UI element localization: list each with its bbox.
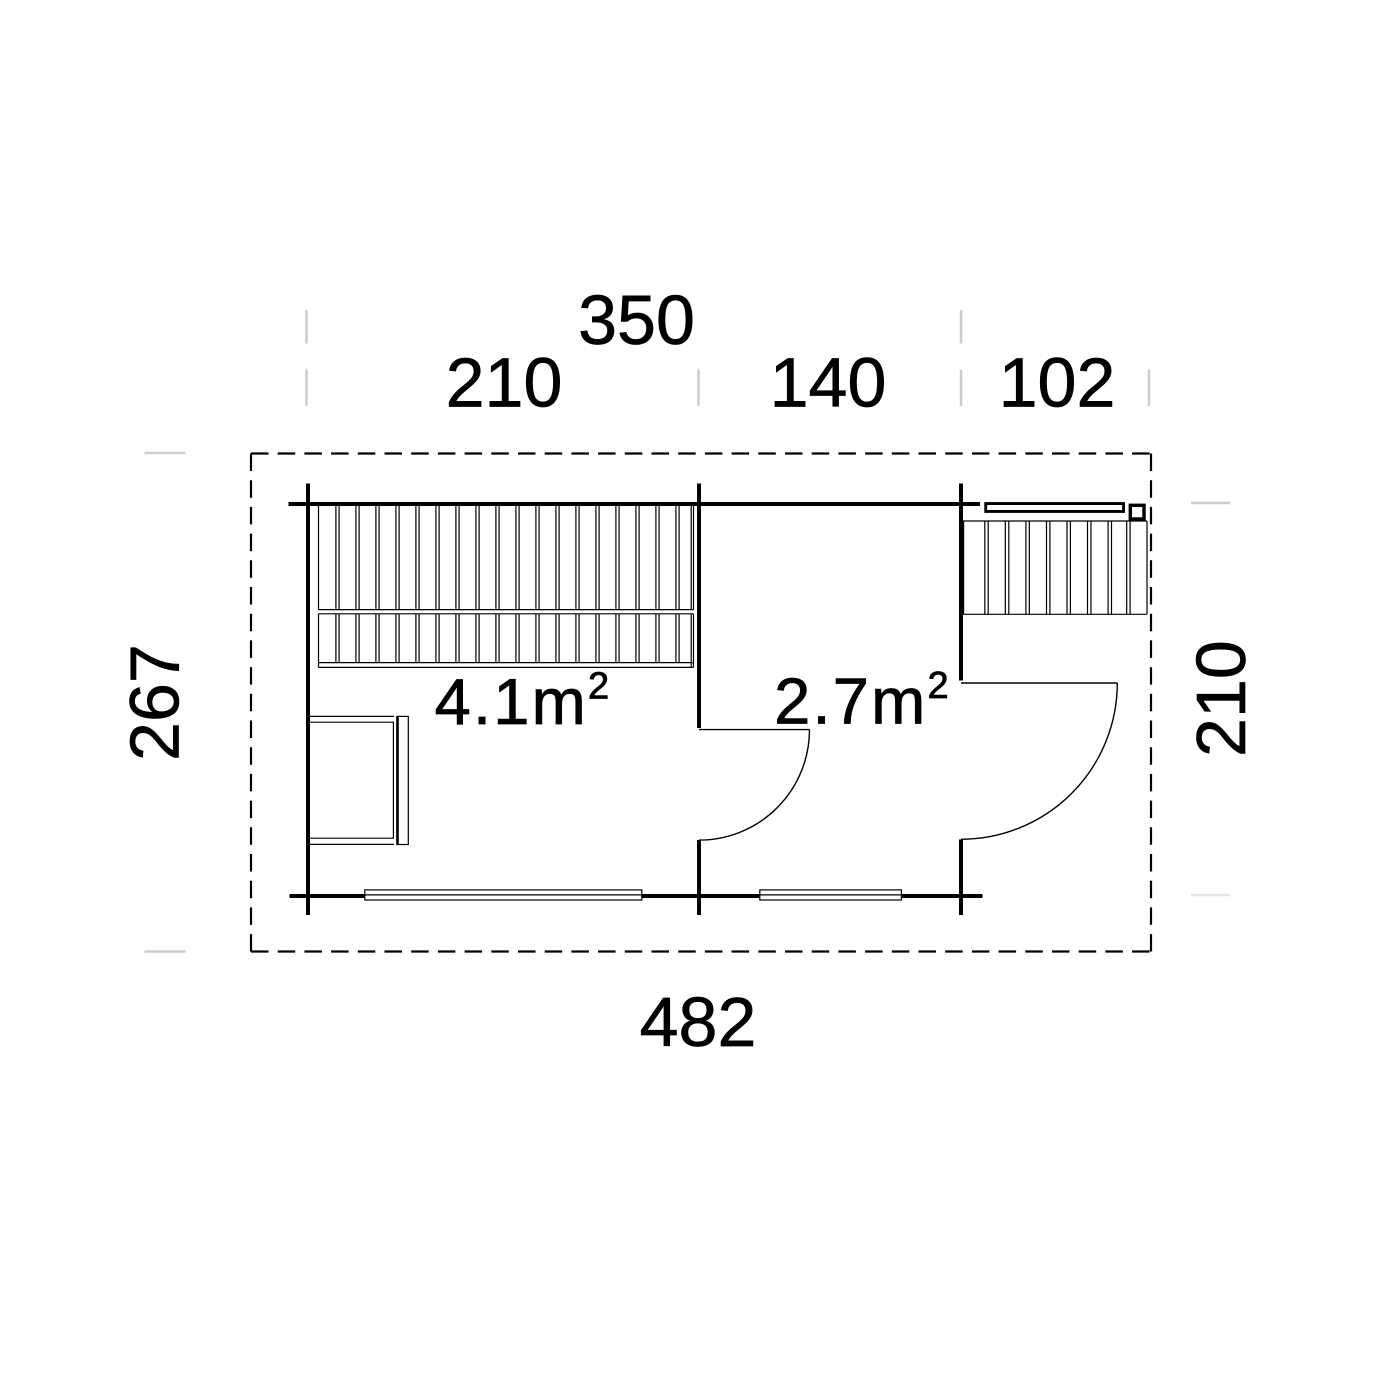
svg-text:2.7m2: 2.7m2 bbox=[774, 665, 951, 738]
svg-text:4.1m2: 4.1m2 bbox=[435, 665, 612, 738]
svg-text:210: 210 bbox=[1182, 640, 1260, 757]
svg-text:350: 350 bbox=[578, 281, 695, 359]
svg-text:267: 267 bbox=[116, 644, 194, 761]
svg-text:210: 210 bbox=[446, 344, 563, 422]
svg-text:482: 482 bbox=[640, 983, 757, 1061]
svg-text:102: 102 bbox=[999, 344, 1116, 422]
svg-text:140: 140 bbox=[770, 344, 887, 422]
